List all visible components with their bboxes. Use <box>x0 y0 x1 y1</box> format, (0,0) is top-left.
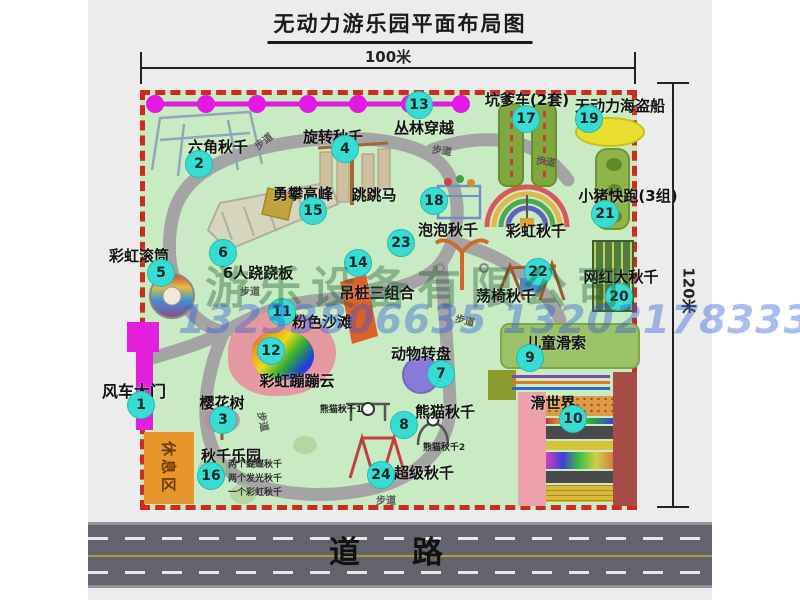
marker-11: 11 <box>268 298 296 326</box>
marker-17: 17 <box>512 105 540 133</box>
page-title: 无动力游乐园平面布局图 <box>268 8 533 44</box>
marker-24: 24 <box>367 461 395 489</box>
marker-10: 10 <box>559 405 587 433</box>
marker-5: 5 <box>147 259 175 287</box>
marker-12: 12 <box>257 337 285 365</box>
marker-13: 13 <box>405 91 433 119</box>
label-pink-beach: 粉色沙滩 <box>292 311 352 332</box>
dimension-height-label: 120米 <box>679 267 700 313</box>
slide-world-area <box>488 370 638 508</box>
label-chair-swing: 荡椅秋千 <box>476 285 536 306</box>
marker-15: 15 <box>299 197 327 225</box>
walkway-label: 步道 <box>240 283 260 298</box>
marker-18: 18 <box>420 187 448 215</box>
label-panda-swing: 熊猫秋千 <box>415 401 475 422</box>
screenshot-stage: 无动力游乐园平面布局图 100米 120米 <box>0 0 800 600</box>
marker-9: 9 <box>516 344 544 372</box>
marker-6: 6 <box>209 239 237 267</box>
marker-2: 2 <box>185 150 213 178</box>
label-rainbow-swing: 彩虹秋千 <box>506 220 566 241</box>
road-label: 道路 <box>329 527 495 572</box>
dimension-line-height <box>672 82 674 508</box>
windmill-gate-top <box>127 322 159 352</box>
walkway-label: 步道 <box>431 141 453 159</box>
marker-3: 3 <box>209 406 237 434</box>
marker-14: 14 <box>344 249 372 277</box>
label-panda-swing-2: 熊猫秋千2 <box>423 440 465 453</box>
marker-22: 22 <box>524 258 552 286</box>
dimension-line-width <box>140 67 636 69</box>
label-super-swing: 超级秋千 <box>394 462 454 483</box>
marker-4: 4 <box>331 135 359 163</box>
swing-park-note-2: 两个发光秋千 <box>228 471 282 484</box>
label-jungle-crossing: 丛林穿越 <box>394 117 454 138</box>
rest-area-box: 休息区 <box>144 432 194 504</box>
marker-16: 16 <box>197 462 225 490</box>
label-hanging-piles: 吊桩三组合 <box>339 282 414 303</box>
marker-1: 1 <box>127 391 155 419</box>
label-bubble-swing: 泡泡秋千 <box>418 219 478 240</box>
walkway-label: 步道 <box>535 152 557 170</box>
swing-park-note-3: 一个彩虹秋千 <box>228 485 282 498</box>
label-pig-run: 小猪快跑(3组) <box>578 185 677 206</box>
marker-23: 23 <box>387 229 415 257</box>
marker-8: 8 <box>390 411 418 439</box>
marker-19: 19 <box>575 105 603 133</box>
label-rainbow-cloud: 彩虹蹦蹦云 <box>259 370 334 391</box>
label-panda-swing-1: 熊猫秋千1 <box>320 402 362 415</box>
dimension-width-label: 100米 <box>365 46 411 67</box>
swing-park-note-1: 两个蝴蝶秋千 <box>228 457 282 470</box>
walkway-label: 步道 <box>376 492 396 507</box>
marker-21: 21 <box>591 200 619 228</box>
label-jump-horse: 跳跳马 <box>351 184 396 205</box>
marker-20: 20 <box>605 283 633 311</box>
marker-7: 7 <box>427 360 455 388</box>
rest-area-label: 休息区 <box>159 441 180 495</box>
label-seesaw: 6人跷跷板 <box>223 262 293 283</box>
